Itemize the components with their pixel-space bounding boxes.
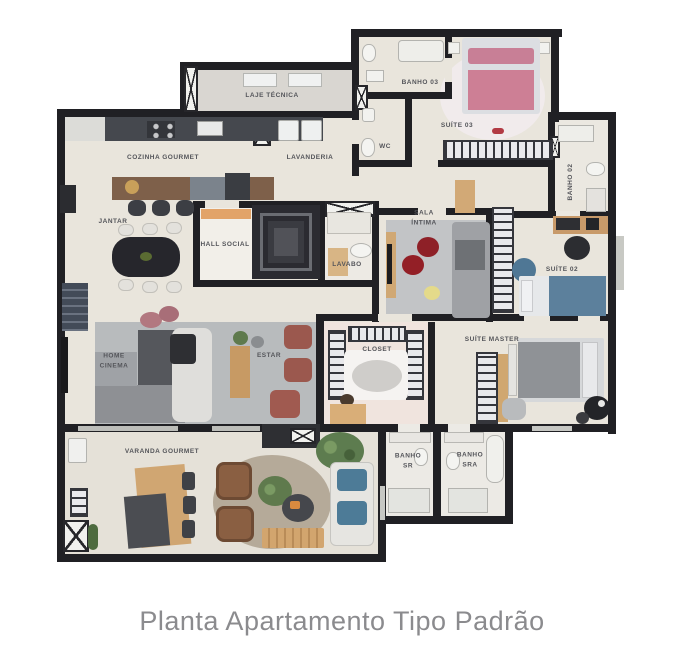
wall-closet-left bbox=[316, 314, 324, 432]
desk-monitor bbox=[556, 218, 580, 230]
wall-wc-right bbox=[405, 99, 412, 167]
wall-closet-right bbox=[428, 322, 435, 432]
dining-centerpiece bbox=[140, 252, 152, 261]
closet-island bbox=[352, 360, 402, 392]
wall-exterior-left-wing-top bbox=[57, 109, 188, 117]
wall-exterior-banho02-top bbox=[551, 112, 616, 120]
wall-exterior-top-right-block bbox=[351, 29, 562, 37]
banho03-sink bbox=[366, 70, 384, 82]
vanity-mirror-dot bbox=[598, 400, 605, 407]
door-gap-banho-sra bbox=[448, 424, 470, 432]
room-label-closet: CLOSET bbox=[362, 345, 391, 355]
throw-blanket bbox=[170, 334, 196, 364]
armchair-terracotta-1 bbox=[284, 325, 312, 349]
door-gap-lavanderia bbox=[352, 176, 359, 202]
kitchen-cabinet-white bbox=[65, 117, 107, 141]
room-label-banho-03: BANHO 03 bbox=[402, 78, 439, 88]
dresser-corridor bbox=[455, 180, 475, 213]
wall-hall-left bbox=[193, 201, 200, 287]
banho-sr-counter bbox=[389, 432, 431, 443]
bar-stool-2 bbox=[152, 200, 170, 216]
wc-sink bbox=[362, 108, 375, 122]
outdoor-chair-1 bbox=[182, 472, 195, 490]
banho-sra-tub bbox=[486, 435, 504, 483]
wall-exterior-banhos-bottom bbox=[382, 516, 513, 524]
room-label-banho-sra: BANHO SRA bbox=[457, 450, 483, 470]
window-suite-master bbox=[532, 426, 572, 431]
door-gap-suite03 bbox=[412, 160, 438, 167]
floor-plan-page: LAJE TÉCNICA COZINHA GOURMET LAVANDERIA … bbox=[0, 0, 685, 668]
window-varanda-right bbox=[380, 486, 385, 520]
slat-bench bbox=[262, 528, 324, 548]
door-gap-hall bbox=[205, 201, 239, 208]
room-label-wc: WC bbox=[379, 142, 391, 152]
bar-stool-1 bbox=[128, 200, 146, 216]
bed-suite-master bbox=[518, 338, 604, 402]
wall-banho02-left bbox=[548, 112, 555, 218]
bed-bench-master bbox=[508, 344, 517, 396]
banho02-toilet bbox=[586, 162, 605, 176]
door-gap-banho03 bbox=[445, 58, 452, 82]
elevator bbox=[252, 205, 320, 279]
glass-door-varanda-2 bbox=[212, 426, 260, 431]
dining-chair bbox=[142, 281, 158, 293]
room-label-suite-03: SUÍTE 03 bbox=[441, 121, 473, 131]
island-sink-section bbox=[190, 177, 225, 200]
dining-chair bbox=[142, 223, 158, 235]
red-pouf-1 bbox=[417, 237, 439, 257]
dryer bbox=[301, 120, 322, 141]
dining-chair bbox=[166, 281, 182, 293]
pouf-mauve-2 bbox=[159, 306, 179, 322]
outdoor-sofa bbox=[330, 462, 374, 546]
chair-master bbox=[502, 398, 526, 420]
cushion-yellow bbox=[424, 286, 440, 300]
ac-unit-1 bbox=[243, 73, 277, 87]
room-label-varanda-gourmet: VARANDA GOURMET bbox=[125, 447, 199, 457]
dining-chair bbox=[166, 222, 182, 234]
red-pouf-2 bbox=[402, 255, 424, 275]
banho-sra-shower bbox=[448, 488, 488, 513]
lavabo-sink bbox=[350, 243, 372, 258]
banho02-shower bbox=[586, 188, 606, 212]
door-gap-banho-sr bbox=[398, 424, 420, 432]
desk-chair bbox=[564, 236, 590, 260]
wall-banho-sr-sra bbox=[433, 424, 441, 522]
desk-item bbox=[586, 218, 599, 230]
room-label-estar: ESTAR bbox=[257, 351, 281, 361]
room-label-banho-sr: BANHO SR bbox=[395, 451, 421, 471]
stove bbox=[147, 121, 175, 138]
wardrobe-divider-suite02 bbox=[492, 207, 514, 313]
wall-hall-bottom bbox=[193, 280, 378, 287]
outdoor-chair-2 bbox=[183, 496, 196, 514]
glass-door-varanda-1 bbox=[78, 426, 178, 431]
tv-sala bbox=[387, 244, 392, 284]
vanity-stool bbox=[576, 412, 589, 424]
balcony-rail bbox=[616, 236, 624, 290]
lavabo-counter bbox=[327, 212, 371, 234]
banho02-sink bbox=[558, 125, 594, 142]
room-label-hall-social: HALL SOCIAL bbox=[200, 240, 249, 250]
elevator-cab-inner bbox=[274, 228, 298, 256]
armchair-terracotta-3 bbox=[270, 390, 300, 418]
room-label-laje-tecnica: LAJE TÉCNICA bbox=[245, 91, 298, 101]
outdoor-chair-3 bbox=[182, 520, 195, 538]
wall-lavabo-right bbox=[372, 201, 379, 322]
door-gap-wc bbox=[352, 120, 359, 144]
bed-blanket-gray bbox=[518, 342, 580, 398]
kitchen-sink bbox=[197, 121, 223, 136]
doormat bbox=[201, 209, 251, 219]
side-table-estar bbox=[251, 336, 264, 348]
sofa-blanket bbox=[455, 240, 485, 270]
bed-suite-03 bbox=[462, 38, 540, 114]
closet-bench bbox=[330, 404, 366, 424]
nightstand bbox=[448, 42, 460, 54]
room-label-home-cinema: HOME CINEMA bbox=[100, 351, 129, 371]
rattan-armchair-2 bbox=[216, 506, 254, 542]
closet-rack-right bbox=[406, 330, 424, 400]
room-label-jantar: JANTAR bbox=[99, 217, 128, 227]
grill bbox=[290, 428, 316, 444]
bed-blanket bbox=[468, 70, 534, 110]
shaft-x-banho03 bbox=[355, 85, 368, 110]
fridge bbox=[225, 173, 250, 200]
slippers bbox=[492, 128, 504, 134]
room-label-suite-02: SUÍTE 02 bbox=[546, 265, 578, 275]
bar-stool-3 bbox=[176, 200, 194, 216]
sofa-cushion-blue-2 bbox=[337, 501, 367, 525]
island-decor bbox=[125, 180, 139, 194]
plant-varanda-small bbox=[88, 524, 98, 550]
banho03-toilet bbox=[362, 44, 376, 62]
outdoor-fridge bbox=[68, 438, 87, 463]
plant-sideboard bbox=[233, 331, 248, 345]
closet-rack-top bbox=[348, 326, 406, 342]
sofa-cushion-blue-1 bbox=[337, 469, 367, 491]
door-gap-corridor bbox=[378, 314, 412, 321]
bed-pillow-band bbox=[468, 48, 534, 64]
room-label-lavanderia: LAVANDERIA bbox=[287, 153, 334, 163]
outdoor-console-dark bbox=[124, 493, 170, 548]
banho03-shower bbox=[398, 40, 444, 62]
wall-suite03-bottom bbox=[352, 160, 555, 167]
dining-chair bbox=[118, 279, 134, 291]
bed-suite-02 bbox=[519, 276, 606, 316]
shaft-dark-left-wall bbox=[60, 185, 76, 213]
room-label-lavabo: LAVABO bbox=[332, 260, 361, 270]
sideboard-estar bbox=[230, 346, 250, 398]
ac-unit-2 bbox=[288, 73, 322, 87]
wall-exterior-left bbox=[57, 109, 65, 562]
wardrobe-suite-03 bbox=[443, 140, 553, 160]
washer bbox=[278, 120, 299, 141]
wardrobe-suite-master bbox=[476, 352, 498, 424]
rattan-armchair-1 bbox=[216, 462, 252, 500]
banho-sr-shower bbox=[388, 488, 430, 513]
wc-toilet bbox=[361, 138, 375, 157]
room-label-sala-intima: SALA ÍNTIMA bbox=[411, 208, 436, 228]
sofa-sala-intima bbox=[452, 222, 490, 318]
bed-pillow bbox=[521, 280, 533, 312]
tv-home-cinema bbox=[61, 337, 68, 393]
shaft-x-laje bbox=[184, 66, 198, 112]
wall-exterior-suite03-right bbox=[551, 29, 559, 122]
wall-exterior-banhos-right bbox=[505, 424, 513, 524]
tray-orange bbox=[290, 501, 300, 509]
banho-sra-counter bbox=[444, 432, 484, 443]
plan-caption: Planta Apartamento Tipo Padrão bbox=[139, 606, 544, 637]
wine-cabinet bbox=[62, 283, 88, 331]
room-label-suite-master: SUÍTE MASTER bbox=[465, 335, 519, 345]
wall-exterior-top-laje bbox=[180, 62, 358, 70]
bed-pillows-master bbox=[582, 342, 598, 398]
bed-blanket-blue bbox=[549, 276, 606, 316]
outdoor-cabinet bbox=[70, 488, 88, 517]
wall-exterior-bottom bbox=[57, 554, 386, 562]
armchair-terracotta-2 bbox=[284, 358, 312, 382]
room-label-cozinha-gourmet: COZINHA GOURMET bbox=[127, 153, 199, 163]
shaft-x-varanda bbox=[63, 520, 89, 552]
wall-exterior-right bbox=[608, 112, 616, 434]
room-label-banho-02: BANHO 02 bbox=[566, 164, 576, 201]
